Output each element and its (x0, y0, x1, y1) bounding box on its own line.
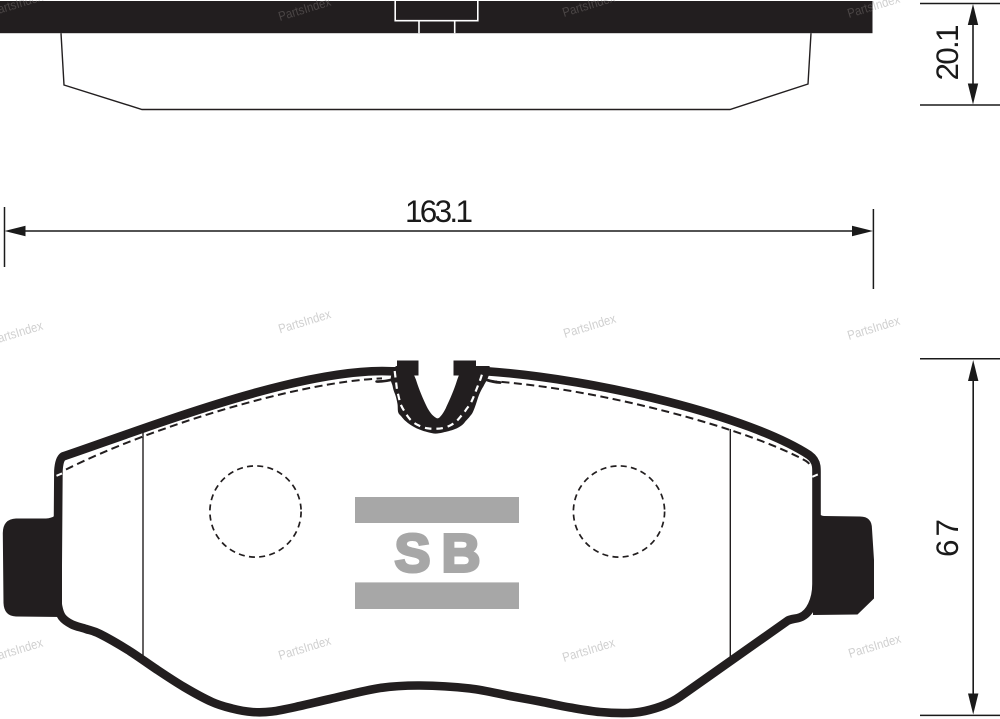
svg-text:20.1: 20.1 (929, 25, 965, 81)
svg-text:163.1: 163.1 (405, 193, 473, 229)
